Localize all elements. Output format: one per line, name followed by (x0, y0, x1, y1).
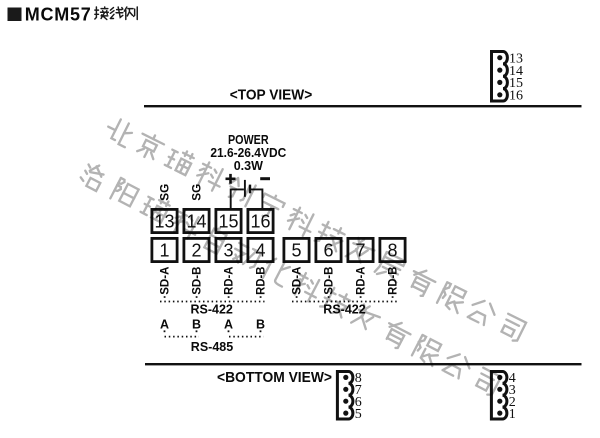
svg-text:0.3W: 0.3W (234, 159, 263, 173)
svg-text:3: 3 (223, 240, 233, 260)
svg-text:·RD-A: ·RD-A (356, 267, 368, 299)
svg-text:5: 5 (355, 407, 362, 422)
svg-text:5: 5 (291, 240, 301, 260)
svg-text:B: B (192, 317, 201, 331)
svg-text:RS-422: RS-422 (191, 303, 233, 317)
svg-text:B: B (256, 317, 265, 331)
svg-text:MCM57: MCM57 (25, 5, 91, 25)
svg-text:POWER: POWER (228, 133, 269, 147)
svg-text:16: 16 (509, 89, 523, 104)
svg-text:6: 6 (323, 240, 333, 260)
svg-text:·SD-A: ·SD-A (160, 267, 172, 299)
svg-text:<BOTTOM VIEW>: <BOTTOM VIEW> (217, 369, 332, 386)
svg-text:21.6-26.4VDC: 21.6-26.4VDC (210, 146, 286, 160)
svg-text:2: 2 (191, 240, 201, 260)
svg-text:15: 15 (218, 211, 238, 231)
svg-text:·RD-A: ·RD-A (224, 267, 236, 299)
svg-text:A: A (224, 317, 233, 331)
svg-text:SG: SG (160, 184, 172, 201)
svg-text:·SD-B: ·SD-B (192, 267, 204, 299)
svg-text:<TOP VIEW>: <TOP VIEW> (230, 87, 313, 104)
svg-text:SG: SG (192, 184, 204, 201)
svg-text:A: A (160, 317, 169, 331)
svg-text:1: 1 (159, 240, 169, 260)
svg-text:1: 1 (509, 407, 516, 422)
svg-text:RS-485: RS-485 (191, 340, 233, 354)
